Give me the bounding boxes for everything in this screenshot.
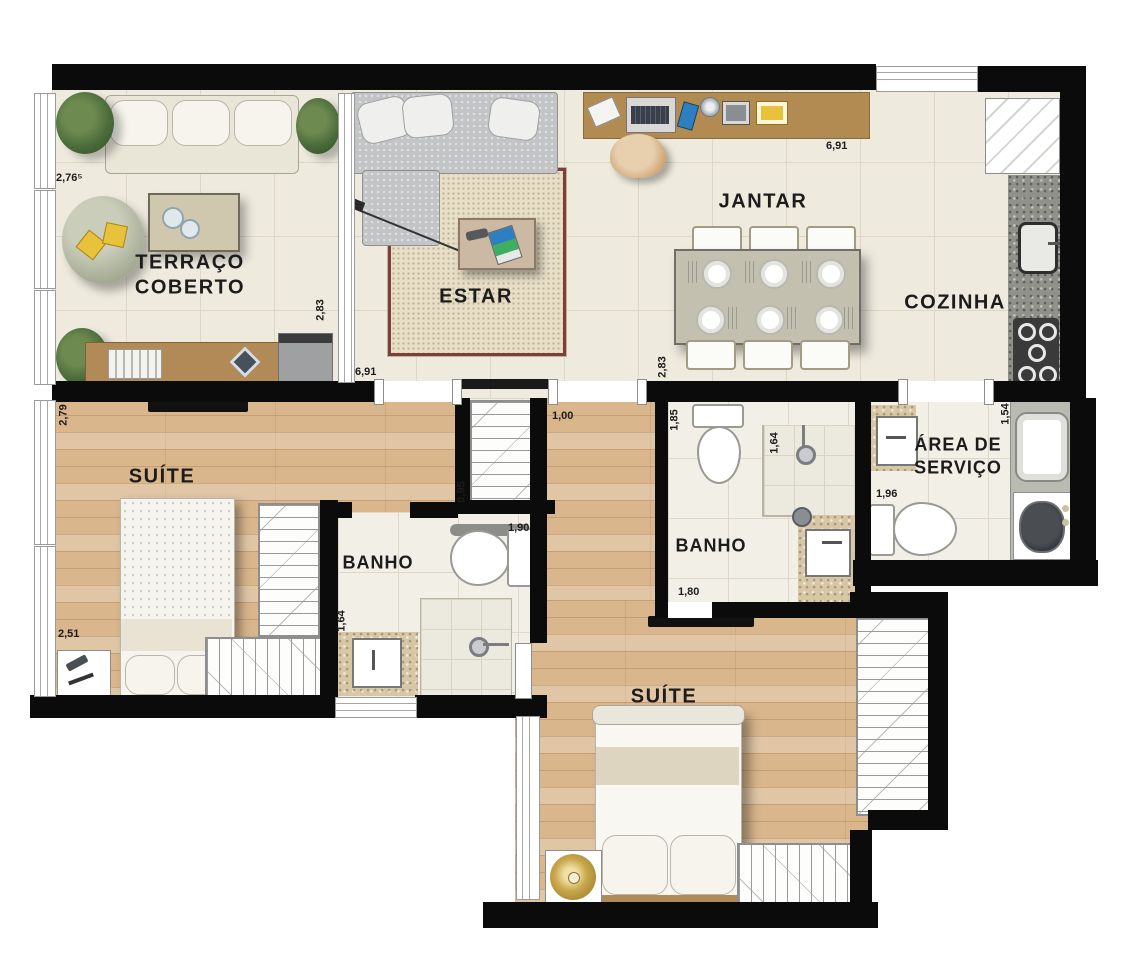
gold-disc-decor [550,854,596,900]
door-frame [984,379,994,405]
decor-diamond [229,346,260,377]
wardrobe-suite2 [737,843,867,906]
laundry-faucet [886,436,906,439]
dim-label: 1,80 [678,586,699,598]
wall-mid-left [52,381,382,402]
dining-table [674,249,861,345]
wall-suite2-step [868,810,948,830]
label-banho2: BANHO [676,536,747,557]
wall-top [52,64,876,90]
sofa-cushion [234,100,292,146]
label-terraco-line2: COBERTO [135,277,245,300]
dining-chair [743,340,793,370]
window-suite1-left-1 [34,400,56,545]
shower-head [469,637,489,657]
dining-chair [686,340,736,370]
sink1-faucet [372,650,375,670]
sofa-cushion [110,100,168,146]
terrace-grill [278,333,333,385]
closet-suite2-side [856,617,932,816]
glass [180,219,200,239]
sofa-cushion [172,100,230,146]
laptop [626,97,676,133]
plate [759,259,789,289]
closet-suite1-tall [258,503,320,637]
dim-label: 2,83 [657,356,669,377]
label-banho1: BANHO [343,553,414,574]
window-suite1-left-2 [34,546,56,697]
plate [702,259,732,289]
washer-knob [1062,519,1069,526]
dim-label: 2,76⁵ [56,172,83,184]
wall-mid-right [638,381,875,402]
wall-kitchen-bottom-right [985,381,1075,402]
window-terrace-left-1 [34,93,56,189]
wall-suite2-bottom [483,902,878,928]
sink2-basin [805,529,851,577]
cutlery [688,261,698,283]
shower1 [420,598,512,697]
shower-arm [802,425,805,447]
desk-chair [610,134,666,178]
dim-label: 2,51 [58,628,79,640]
sink2-counter [798,515,855,602]
window-top-right [876,66,978,92]
dim-label: 1,96 [876,488,897,500]
sofa-cushion [486,96,541,143]
door-frame [637,379,647,405]
wardrobe-suite1 [205,637,324,699]
toilet2-tank [692,404,744,428]
washing-machine [1013,492,1073,560]
desk [583,92,870,139]
wall-suite2-right-lower [850,830,872,910]
dining-chair [800,340,850,370]
label-suite2: SUÍTE [631,686,697,709]
door-frame [452,379,462,405]
dim-label: 1,00 [552,410,573,422]
door-hallway [555,381,638,402]
door-banho1-leaf [515,643,532,699]
desk-fan [700,97,720,117]
cutlery [728,307,738,329]
plate [814,305,844,335]
laptop-keyboard [631,106,669,124]
window-banho1 [335,697,417,718]
books [108,349,162,379]
wall-banho2-bottom [712,602,871,618]
wall-closet-top [453,379,555,389]
wall-right-service [1070,398,1096,564]
window-terrace-left-2 [34,190,56,289]
sofa-cushion [401,93,455,140]
sink1-basin [352,638,402,688]
door-frame [374,379,384,405]
outside-right [948,586,1134,968]
wall-right-kitchen [1060,66,1086,398]
window-suite2-left [516,716,540,900]
remote-control [65,654,88,671]
dim-label: 1,54 [1000,403,1012,424]
terrace-round-table [62,196,144,284]
laundry-tub [1015,412,1069,482]
hallway-floor [540,398,668,628]
bed-pillow [670,835,736,895]
door-service [905,381,985,402]
cushion-yellow [102,222,128,248]
plate [816,259,846,289]
dim-label: 0,95 [456,481,468,502]
door-frame [548,379,558,405]
sectional-sofa-chaise [362,170,440,246]
label-suite1: SUÍTE [129,466,195,489]
tv-suite1 [148,401,248,412]
label-servico-line1: ÁREA DE [914,435,1001,456]
wall-banho1-top-a [338,502,352,518]
dim-label: 6,91 [826,140,847,152]
door-suite1 [382,381,453,402]
dim-label: 6,91 [355,366,376,378]
label-servico-line2: SERVIÇO [914,458,1002,479]
cutlery [802,261,812,283]
plant [56,92,114,154]
refrigerator [985,98,1060,174]
wall-banho1-hall [530,398,547,643]
label-cozinha: COZINHA [904,292,1006,315]
dim-label: 1,64 [336,610,348,631]
wall-hall-banho2 [655,398,668,618]
cushion-yellow [76,230,107,261]
wall-banho2-right [855,398,871,618]
door-frame [898,379,908,405]
terrace-sofa [105,95,299,174]
door-banho2 [668,602,712,618]
sink1-counter [338,632,418,696]
burner [1028,344,1046,362]
sink2-drain [792,507,812,527]
outside-bottom-right [872,830,972,968]
living-coffee-table [458,218,536,270]
dim-label: 1,90 [508,522,529,534]
radio [722,101,750,125]
plant [296,98,340,154]
floor-plan: TERRAÇO COBERTO ESTAR JANTAR COZINHA SUÍ… [0,0,1134,968]
bed-blanket [121,499,232,619]
photo-frame [756,101,788,125]
burner [1039,323,1057,341]
cooktop [1013,318,1059,390]
dim-label: 1,64 [769,432,781,453]
burner [1018,323,1036,341]
washer-knob [1062,505,1069,512]
dim-label: 2,79 [58,404,70,425]
terrace-coffee-table [148,193,240,252]
wall-below-service [853,560,1098,586]
bed-pillow [602,835,668,895]
shower-head [796,445,816,465]
bed-suite2 [595,710,742,904]
label-terraco-line1: TERRAÇO [135,252,244,275]
remote-control [465,228,488,241]
plate [696,305,726,335]
kitchen-sink [1018,222,1058,274]
wall-banho1-top-b [410,502,458,518]
bed-pillow [125,655,175,695]
washer-drum [1019,501,1065,553]
sectional-sofa-main [350,92,558,174]
cutlery [844,307,854,329]
magazine [487,225,522,265]
cutlery [787,307,797,329]
closet-nook [470,400,534,502]
glass-door-terrace [338,93,355,383]
wall-suite1-bottom [30,695,330,718]
wall-suite2-right-upper [928,598,948,830]
plate [755,305,785,335]
smartphone [677,101,700,130]
laundry-sink [876,416,918,466]
label-jantar: JANTAR [719,191,808,214]
shower-arm [483,643,509,646]
wall-suite1-banho1 [320,500,338,718]
pen [68,673,94,686]
dim-label: 1,85 [669,409,681,430]
sink2-faucet [822,541,842,544]
nightstand-suite1 [57,650,111,698]
cutlery [745,261,755,283]
window-terrace-left-3 [34,290,56,385]
disc-center [568,872,580,884]
toilet3-tank [869,504,895,556]
dim-label: 2,83 [315,299,327,320]
label-estar: ESTAR [439,286,513,309]
bed-band [596,747,739,785]
book [587,96,622,127]
